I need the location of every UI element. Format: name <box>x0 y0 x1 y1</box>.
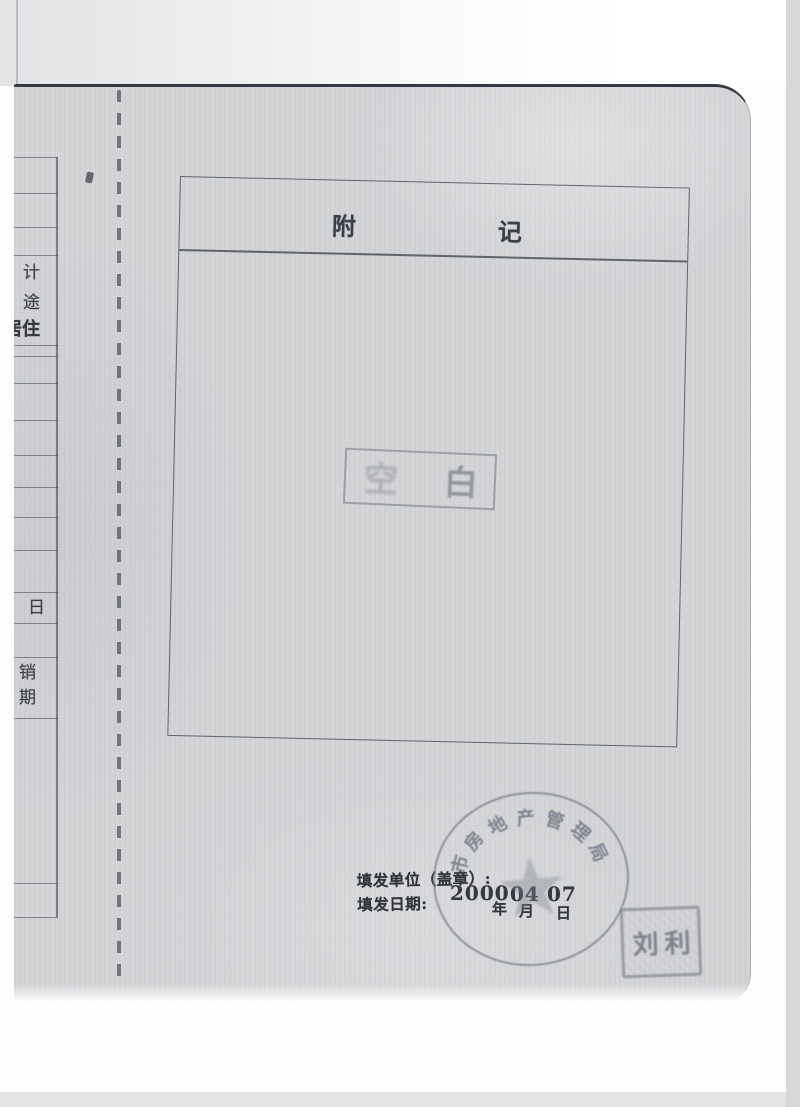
scanned-certificate-page: 计 途 居住 日 销 期 附 记 空 白 填发单位（盖章）: 填发日期: 200… <box>0 0 800 1107</box>
notes-title-char-left: 附 <box>332 206 357 242</box>
scan-bottom-strip <box>0 1092 786 1107</box>
round-seal-arc-char: 产 <box>515 804 535 831</box>
blank-stamp: 空 白 <box>343 448 497 511</box>
fragment-text: 日 <box>28 593 45 618</box>
blank-stamp-char-left: 空 <box>363 451 399 501</box>
fragment-text: 期 <box>19 683 36 708</box>
scan-top-band <box>0 0 786 86</box>
name-seal-text: 刘利 <box>632 922 697 961</box>
blank-stamp-char-right: 白 <box>443 455 479 505</box>
fragment-text: 居住 <box>14 315 40 341</box>
notes-header-divider <box>179 249 687 262</box>
binding-stitch <box>117 90 121 984</box>
fragment-text: 途 <box>23 288 40 313</box>
notes-title-char-right: 记 <box>497 212 522 248</box>
fragment-text: 销 <box>19 658 36 683</box>
scan-right-strip <box>786 0 800 1107</box>
star-icon: ★ <box>491 837 573 938</box>
round-official-seal: 市房地产管理局 ★ <box>426 784 636 974</box>
cover-edge-line <box>16 0 18 86</box>
fragment-text: 计 <box>23 258 40 283</box>
left-page-fragments: 计 途 居住 日 销 期 <box>14 150 57 940</box>
name-seal: 刘利 <box>620 906 702 979</box>
